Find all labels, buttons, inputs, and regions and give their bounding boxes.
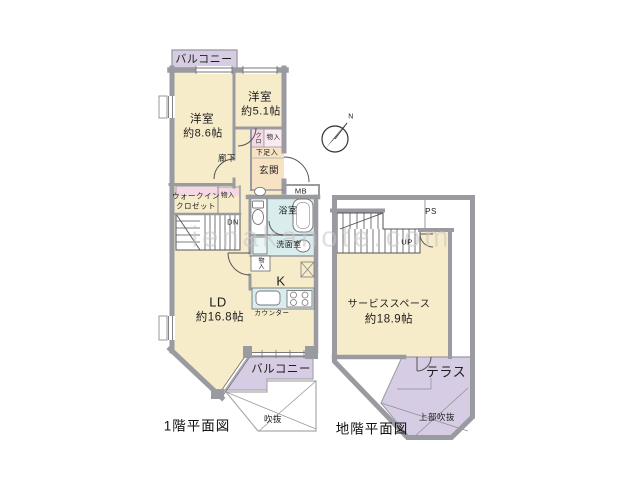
label-hallway: 廊下: [218, 154, 236, 163]
label-stairs-dn: DN: [227, 218, 239, 226]
label-upper-void: 上部吹抜: [419, 413, 455, 422]
stove-icon: [287, 291, 312, 308]
basin-icon: [255, 187, 266, 195]
label-service-size: 約18.9帖: [365, 314, 413, 326]
label-counter: カウンター: [255, 311, 290, 318]
label-wic-line2: クロゼット: [176, 202, 216, 210]
label-bathroom: 浴室: [278, 207, 297, 216]
label-storage-top: 物入: [267, 135, 281, 142]
floor1-title: 1階平面図: [164, 419, 231, 433]
watermark: ienakanote.com: [192, 222, 453, 255]
label-bedroom1-size: 約8.6帖: [183, 129, 223, 140]
label-void: 吹抜: [264, 415, 282, 424]
label-terrace: テラス: [426, 366, 466, 379]
label-shoe-storage: 下足入: [256, 149, 279, 156]
label-balcony-bottom: バルコニー: [251, 364, 311, 376]
label-ld-size: 約16.8帖: [196, 312, 244, 324]
label-bedroom2: 洋室: [248, 92, 272, 104]
label-bedroom1: 洋室: [190, 114, 214, 126]
basement-title: 地階平面図: [336, 422, 409, 436]
label-kitchen: K: [276, 275, 285, 288]
label-wic-storage: 物入: [221, 193, 235, 200]
label-meter-box: MB: [295, 187, 307, 195]
compass-icon: [322, 123, 348, 152]
toilet-tank-icon: [253, 201, 264, 208]
label-closet-abbr: クロ: [254, 132, 260, 144]
label-bedroom2-size: 約5.1帖: [241, 107, 281, 118]
floorplan-page: ienakanote.com バルコニー 洋室 約8.6帖 洋室 約5.1帖 廊…: [0, 0, 640, 480]
label-washroom: 洗面室: [276, 241, 302, 249]
label-compass-north: N: [348, 114, 354, 121]
label-ld: LD: [209, 296, 227, 309]
label-balcony-top: バルコニー: [175, 55, 232, 66]
label-washroom-storage: 物入: [257, 257, 263, 269]
label-wic-line1: ウォークイン: [172, 192, 220, 200]
sink-icon: [256, 291, 280, 305]
label-entrance: 玄関: [259, 166, 279, 176]
label-pipe-space: PS: [425, 208, 437, 216]
label-stairs-up: UP: [401, 238, 412, 246]
label-service-space: サービススペース: [348, 300, 431, 310]
